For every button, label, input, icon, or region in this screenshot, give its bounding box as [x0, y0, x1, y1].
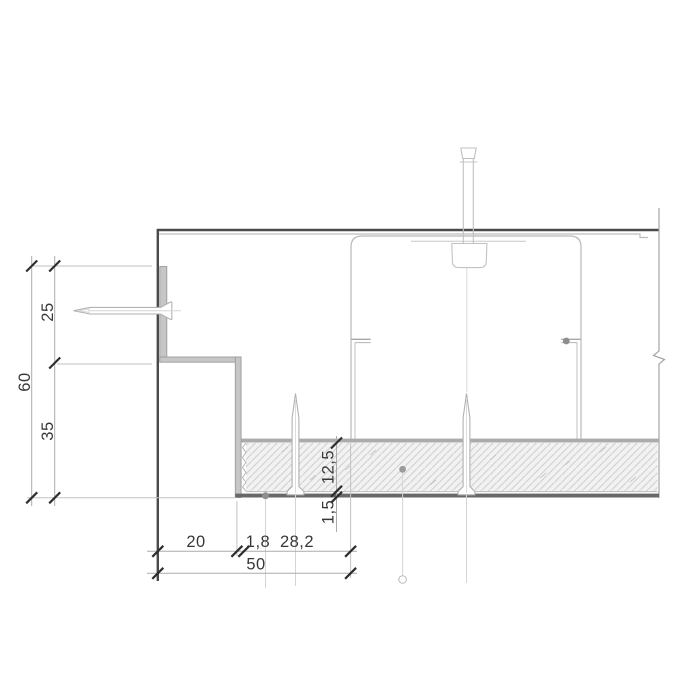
plasterboard: [243, 443, 658, 492]
hanger-assembly: [452, 148, 487, 392]
dim-label-total-width: 50: [246, 556, 265, 574]
channel-clip-right: [561, 338, 580, 439]
hanger-anchor: [461, 148, 476, 159]
ceiling-detail-section: 60 25 35 12,5 1,5 20 1,8 28,2: [0, 0, 700, 700]
dim-label-board-thickness: 12,5: [320, 450, 338, 484]
furring-flange-band: [240, 439, 659, 443]
fastener-head-dot: [262, 492, 269, 499]
axis-end-symbol: [399, 576, 407, 584]
extension-lines: [27, 266, 236, 498]
profile-step: [160, 357, 241, 362]
dim-label-gap: 1,8: [246, 533, 270, 551]
dim-label-wall-to-profile: 20: [186, 533, 205, 551]
screw-horizontal: [74, 302, 182, 319]
cad-drawing-canvas: 60 25 35 12,5 1,5 20 1,8 28,2: [0, 0, 700, 700]
dim-label-flange-thickness: 1,5: [320, 500, 338, 524]
clip-fastener-dot: [563, 338, 570, 345]
perimeter-step-profile: [160, 267, 241, 498]
board-hatch: [246, 443, 658, 491]
profile-drop-leg: [235, 357, 241, 498]
screw-center-vertical: [458, 394, 475, 584]
dim-label-board-width: 28,2: [280, 533, 314, 551]
fastener-head-dot: [399, 466, 406, 473]
screw-left-vertical: [287, 394, 304, 587]
channel-clip-left: [351, 339, 370, 438]
dim-label-upper-height: 25: [39, 302, 57, 321]
dim-label-lower-height: 35: [39, 421, 57, 440]
dim-label-total-height: 60: [16, 372, 34, 391]
hanger-connector: [452, 244, 487, 268]
board-broken-edge: [243, 443, 247, 491]
dimensions-left: 60 25 35: [16, 256, 236, 506]
